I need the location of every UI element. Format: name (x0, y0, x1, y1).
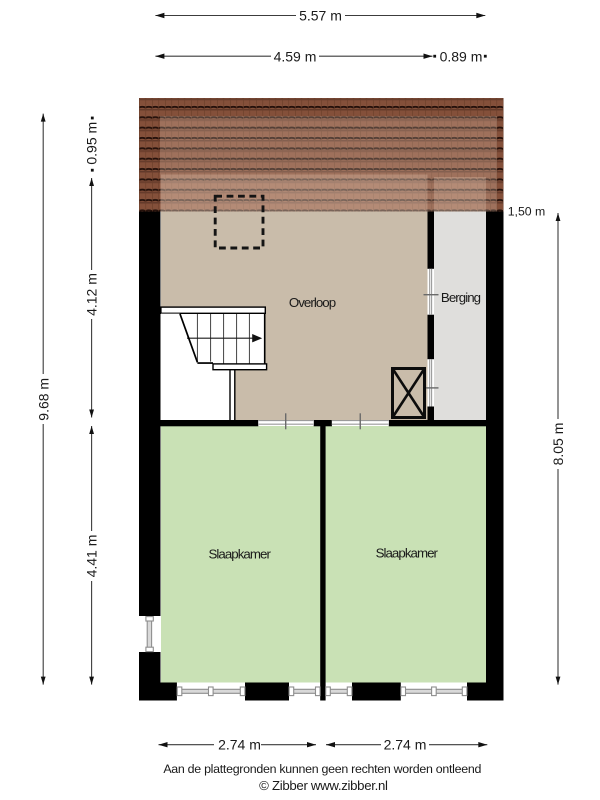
svg-text:8.05 m: 8.05 m (550, 423, 566, 466)
svg-text:Berging: Berging (441, 290, 481, 305)
svg-text:5.57 m: 5.57 m (299, 8, 342, 24)
svg-text:2.74 m: 2.74 m (218, 737, 261, 753)
svg-text:© Zibber www.zibber.nl: © Zibber www.zibber.nl (259, 778, 388, 793)
svg-text:4.41 m: 4.41 m (84, 535, 100, 578)
svg-text:0.89 m: 0.89 m (440, 48, 483, 64)
svg-text:9.68 m: 9.68 m (35, 378, 51, 421)
svg-text:Overloop: Overloop (289, 295, 336, 310)
svg-text:4.59 m: 4.59 m (274, 48, 317, 64)
svg-text:Slaapkamer: Slaapkamer (376, 546, 439, 561)
svg-text:Aan de plattegronden kunnen ge: Aan de plattegronden kunnen geen rechten… (163, 762, 481, 776)
svg-text:2.74 m: 2.74 m (384, 737, 427, 753)
svg-text:0.95 m: 0.95 m (84, 122, 100, 165)
svg-text:Slaapkamer: Slaapkamer (208, 546, 271, 561)
svg-text:4.12 m: 4.12 m (84, 273, 100, 316)
svg-text:1,50 m: 1,50 m (508, 205, 546, 219)
